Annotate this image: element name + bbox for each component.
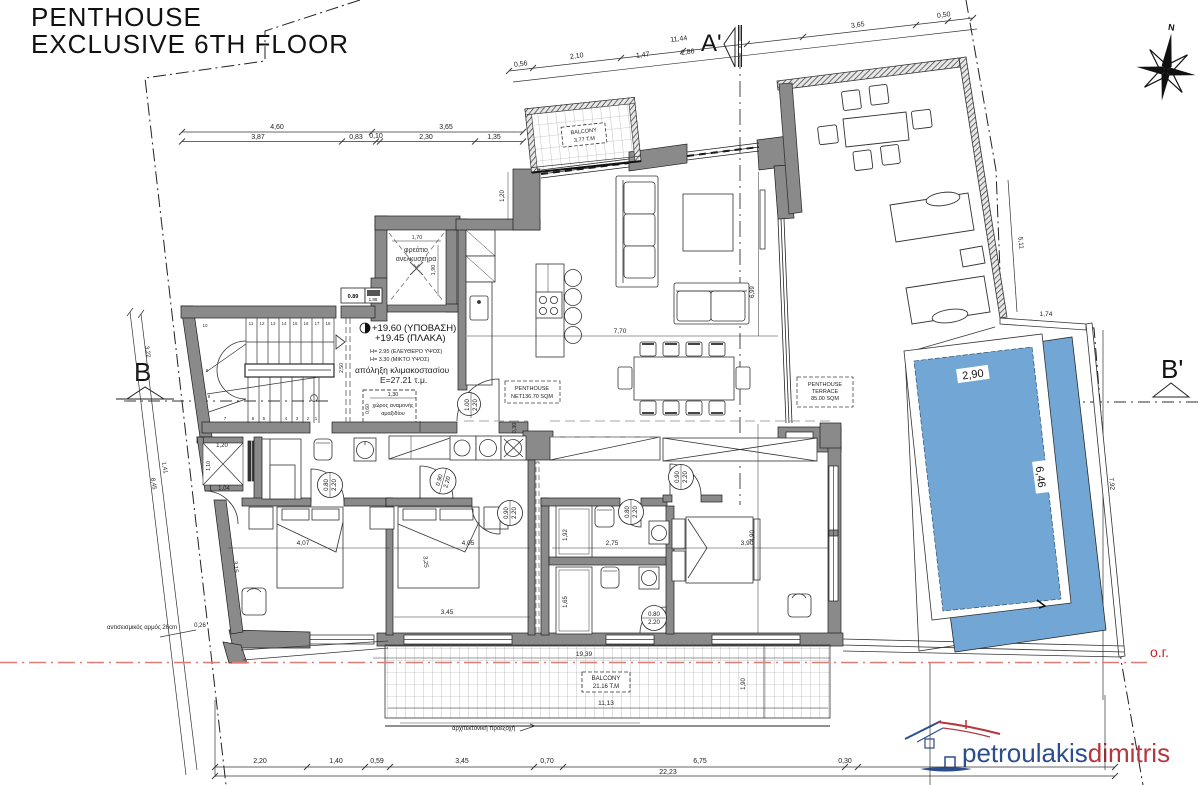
svg-text:PENTHOUSE: PENTHOUSE (515, 386, 550, 392)
svg-text:1,65: 1,65 (563, 596, 569, 608)
svg-text:2.20: 2.20 (473, 399, 479, 411)
svg-text:2,30: 2,30 (419, 134, 433, 141)
svg-text:0,70: 0,70 (540, 758, 554, 765)
svg-text:αντισεισμικός αρμός 26cm: αντισεισμικός αρμός 26cm (107, 624, 177, 631)
svg-text:o.г.: o.г. (1150, 644, 1169, 660)
svg-text:1,40: 1,40 (329, 758, 343, 765)
svg-text:1,74: 1,74 (1040, 311, 1053, 318)
svg-text:0.80: 0.80 (625, 506, 631, 518)
svg-text:B': B' (1161, 354, 1183, 384)
svg-text:2.20: 2.20 (648, 620, 660, 626)
svg-text:1,10: 1,10 (206, 461, 212, 471)
svg-text:16: 16 (303, 321, 309, 326)
svg-text:10: 10 (202, 323, 208, 328)
svg-text:0,83: 0,83 (349, 134, 363, 141)
svg-text:N: N (1167, 22, 1175, 33)
svg-text:0.80: 0.80 (648, 612, 660, 618)
svg-text:3,65: 3,65 (439, 124, 453, 131)
svg-text:PENTHOUSE: PENTHOUSE (31, 2, 202, 32)
svg-text:21.16 T.M: 21.16 T.M (593, 684, 619, 690)
svg-text:BALCONY: BALCONY (592, 676, 621, 682)
svg-text:0,60: 0,60 (365, 404, 371, 414)
svg-text:3,45: 3,45 (441, 609, 454, 616)
svg-text:ανελκυστήρα: ανελκυστήρα (396, 256, 437, 263)
svg-text:H= 3.30 (ΜΙΚΤΟ ΥΨΟΣ): H= 3.30 (ΜΙΚΤΟ ΥΨΟΣ) (370, 357, 429, 363)
svg-text:0.80: 0.80 (324, 479, 330, 491)
svg-text:13: 13 (270, 321, 276, 326)
svg-text:6,99: 6,99 (750, 286, 756, 298)
svg-text:petroulakisdimitris: petroulakisdimitris (962, 738, 1170, 768)
svg-text:5,11: 5,11 (1016, 236, 1024, 249)
svg-text:PENTHOUSE: PENTHOUSE (808, 382, 843, 388)
svg-text:0,10: 0,10 (369, 133, 383, 140)
svg-text:αμαξιδίου: αμαξιδίου (381, 411, 405, 417)
svg-text:17: 17 (314, 321, 320, 326)
svg-text:2.20: 2.20 (332, 479, 338, 491)
svg-text:0,30: 0,30 (838, 758, 852, 765)
svg-text:0,26: 0,26 (194, 623, 206, 629)
svg-text:απόληξη κλιμακοστασίου: απόληξη κλιμακοστασίου (355, 365, 450, 375)
svg-text:1,90: 1,90 (741, 678, 747, 690)
svg-text:3,15: 3,15 (231, 561, 238, 574)
svg-text:18: 18 (325, 321, 331, 326)
svg-text:0,30: 0,30 (512, 423, 518, 434)
svg-text:+19.45 (ΠΛΑΚΑ): +19.45 (ΠΛΑΚΑ) (375, 333, 446, 344)
svg-text:NET136.70 SQM: NET136.70 SQM (511, 394, 553, 400)
svg-text:2.20: 2.20 (683, 471, 689, 483)
svg-text:4,07: 4,07 (297, 540, 310, 547)
svg-text:19,39: 19,39 (576, 651, 593, 658)
svg-text:1,20: 1,20 (500, 190, 506, 202)
svg-text:1,70: 1,70 (412, 235, 423, 241)
svg-text:1.00: 1.00 (465, 399, 471, 411)
svg-text:1,20: 1,20 (216, 443, 228, 449)
svg-text:85.00 SQM: 85.00 SQM (811, 396, 839, 402)
svg-text:7,70: 7,70 (614, 328, 627, 335)
svg-text:B: B (134, 357, 151, 387)
svg-text:2,75: 2,75 (606, 540, 619, 547)
svg-text:0.90: 0.90 (675, 471, 681, 483)
svg-text:TERRACE: TERRACE (812, 389, 839, 395)
svg-text:3,45: 3,45 (455, 758, 469, 765)
svg-text:3,87: 3,87 (251, 134, 265, 141)
svg-text:12: 12 (259, 321, 265, 326)
svg-text:2,20: 2,20 (253, 758, 267, 765)
svg-text:14: 14 (281, 321, 287, 326)
svg-text:1.88: 1.88 (369, 297, 378, 302)
svg-text:1,30: 1,30 (388, 392, 399, 398)
svg-text:EXCLUSIVE 6TH FLOOR: EXCLUSIVE 6TH FLOOR (31, 29, 349, 59)
svg-text:4,60: 4,60 (270, 124, 284, 131)
svg-text:1,90: 1,90 (431, 265, 437, 276)
svg-text:0,59: 0,59 (370, 758, 384, 765)
svg-text:1,04: 1,04 (218, 486, 230, 492)
svg-text:11: 11 (249, 321, 254, 326)
svg-text:3,25: 3,25 (421, 556, 428, 569)
svg-text:1,92: 1,92 (563, 529, 569, 541)
svg-text:0.90: 0.90 (504, 507, 510, 519)
svg-text:2,50: 2,50 (339, 363, 345, 373)
svg-text:φρεάτιο: φρεάτιο (404, 246, 428, 254)
svg-text:2.20: 2.20 (633, 506, 639, 518)
svg-text:4,90: 4,90 (750, 530, 756, 542)
svg-text:15: 15 (292, 321, 298, 326)
svg-text:χώρος αναμονής: χώρος αναμονής (372, 402, 414, 409)
svg-text:2.20: 2.20 (512, 507, 518, 519)
svg-text:22,23: 22,23 (659, 769, 677, 776)
svg-text:6,75: 6,75 (693, 758, 707, 765)
svg-text:0.89: 0.89 (348, 294, 359, 300)
svg-text:4,05: 4,05 (462, 540, 475, 547)
svg-text:A': A' (701, 30, 722, 57)
svg-text:H= 2.95 (ΕΛΕΥΘΕΡΟ ΥΨΟΣ): H= 2.95 (ΕΛΕΥΘΕΡΟ ΥΨΟΣ) (370, 349, 442, 355)
svg-text:1,35: 1,35 (487, 134, 501, 141)
svg-text:11,13: 11,13 (598, 700, 614, 707)
svg-text:αρχιτεκτονική προεξοχή: αρχιτεκτονική προεξοχή (452, 725, 515, 732)
svg-text:E=27.21 τ.μ.: E=27.21 τ.μ. (380, 375, 427, 385)
